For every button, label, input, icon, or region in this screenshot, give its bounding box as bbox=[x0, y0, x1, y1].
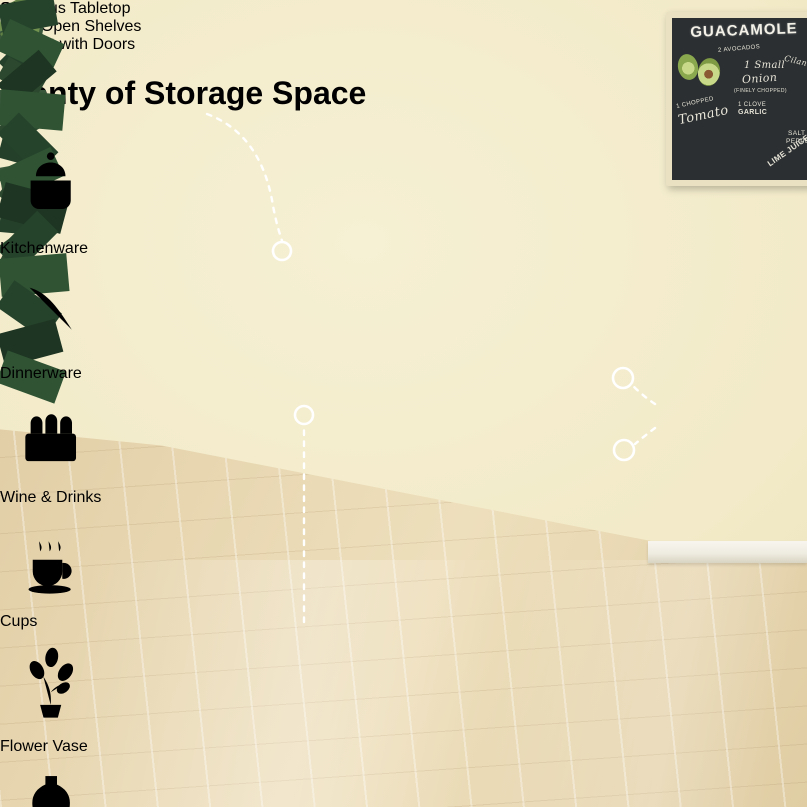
leader-shelf-bottom bbox=[635, 428, 655, 444]
feature-cups: Cups bbox=[0, 507, 101, 631]
feature-kitchenware: Kitchenware bbox=[0, 134, 101, 258]
feature-dinnerware: Dinnerware bbox=[0, 258, 101, 382]
leader-circle-doors bbox=[295, 406, 313, 424]
potted-plant-icon bbox=[0, 631, 101, 737]
vase-icon bbox=[0, 756, 101, 807]
feature-label: Dinnerware bbox=[0, 365, 101, 383]
pot-icon bbox=[0, 134, 101, 240]
feature-label: Flower Vase bbox=[0, 738, 101, 756]
feature-label: Wine & Drinks bbox=[0, 489, 101, 507]
product-infographic: GUACAMOLE 2 AVOCADOS 1 Small Onion (FINE… bbox=[0, 0, 807, 807]
feature-label: Cups bbox=[0, 613, 101, 631]
leader-tabletop bbox=[207, 114, 282, 241]
coffee-cup-icon bbox=[0, 507, 101, 613]
leader-shelf-top bbox=[632, 385, 655, 404]
leader-circle-tabletop bbox=[273, 242, 291, 260]
features-band: Kitchenware Dinnerware bbox=[0, 134, 101, 807]
feature-flower-vase: Flower Vase bbox=[0, 631, 101, 755]
feature-label: Kitchenware bbox=[0, 240, 101, 258]
feature-wine-drinks: Wine & Drinks bbox=[0, 383, 101, 507]
callout-leader-lines bbox=[0, 0, 807, 807]
leader-circle-shelf-bottom bbox=[614, 440, 634, 460]
cutlery-icon bbox=[0, 258, 101, 364]
feature-ornaments: Ornaments bbox=[0, 756, 101, 807]
leader-circle-shelf-top bbox=[613, 368, 633, 388]
bottle-crate-icon bbox=[0, 383, 101, 489]
